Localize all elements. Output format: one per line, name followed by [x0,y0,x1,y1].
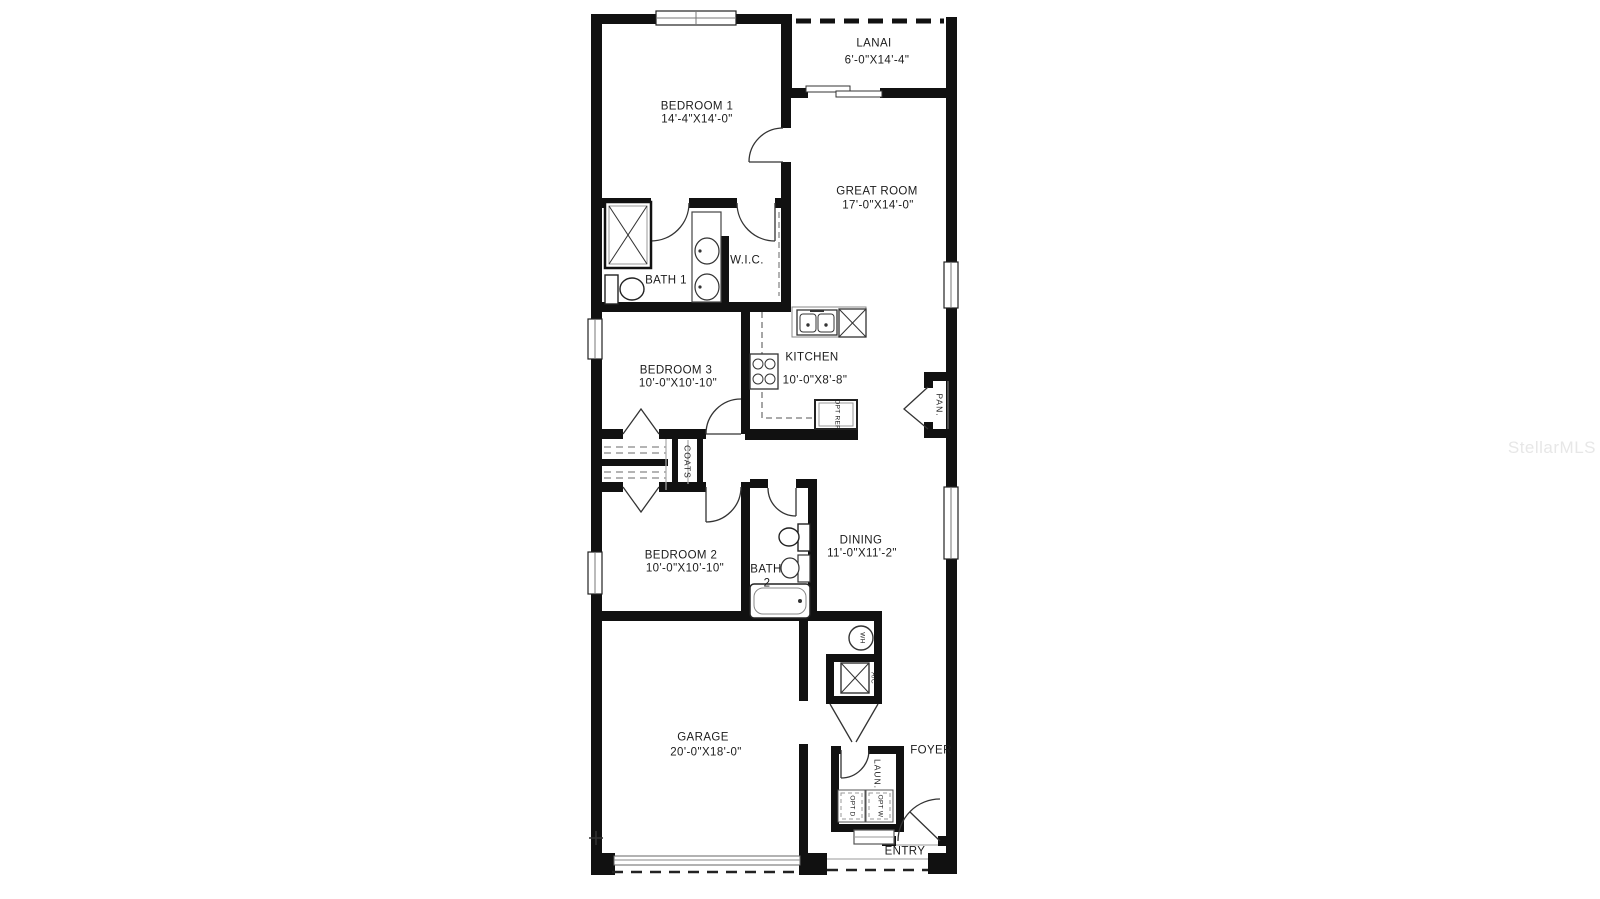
door-bedroom1 [749,128,783,162]
label-opt-washer: OPT W [876,795,883,818]
label-lanai-dims: 6'-0"X14'-4" [845,55,910,67]
wall-left [591,14,602,875]
stellar-mls-watermark: StellarMLS [1508,438,1596,458]
door-wic [737,203,775,241]
wall-bath1-wic-divider [721,236,729,302]
door-closet-bedroom2 [623,487,659,512]
toilet-bowl [779,528,799,546]
door-laundry [841,750,869,778]
label-foyer: FOYER [910,745,952,757]
wall-bath1-bottom [591,302,791,312]
label-kitchen-name: KITCHEN [785,352,838,364]
label-pantry: PAN. [935,393,944,416]
door-bedroom2 [706,487,741,522]
floorplan-linework [0,0,1600,899]
door-ac-leaf-a [830,704,852,742]
toilet-tank [605,275,618,304]
label-greatroom-name: GREAT ROOM [836,186,918,198]
label-bath1: BATH 1 [645,275,687,287]
label-lanai-name: LANAI [856,38,891,50]
kitchen-fixtures [750,307,948,429]
label-greatroom-dims: 17'-0"X14'-0" [842,200,913,212]
wall-bottom-mid [799,853,827,875]
wall-hall-bottom-a [591,482,623,492]
label-bath2-name: BATH [750,564,781,576]
wall-bath2-top-a [750,479,768,488]
interior-walls [591,24,957,853]
wall-bedroom1-greatroom-upper [781,24,791,128]
door-closet-bedroom3 [623,409,659,434]
label-bedroom2-dims: 10'-0"X10'-10" [646,563,724,575]
label-coats: COATS [683,445,692,479]
wall-laundry-top-b [868,746,904,754]
wall-garage-top [591,611,882,621]
label-dining-name: DINING [840,535,883,547]
wall-bath1-top-b [689,198,737,208]
wall-laundry-right [896,746,904,832]
wall-bedroom3-right [741,312,750,434]
label-bedroom1-name: BEDROOM 1 [661,101,734,113]
stove [750,354,778,389]
wall-garage-right-lower [799,744,808,853]
label-bedroom3-dims: 10'-0"X10'-10" [639,378,717,390]
label-laundry: LAUN. [873,759,882,789]
wall-pantry-jamb-bottom [924,422,933,438]
label-ac-unit: A/C [869,672,876,684]
door-ac-leaf-b [856,704,878,742]
toilet-tank [798,524,810,551]
label-bedroom2-name: BEDROOM 2 [645,550,718,562]
floorplan-canvas: BEDROOM 1 14'-4"X14'-0" LANAI 6'-0"X14'-… [0,0,1600,899]
label-entry: ENTRY [885,846,926,858]
label-water-heater: WH [858,632,865,643]
label-bath2-number: 2 [764,578,771,590]
slider-door-lanai [806,86,882,97]
label-opt-refrigerator: OPT REF. [833,399,840,431]
door-bedroom3 [706,399,741,434]
wall-ac-bottom [826,696,882,704]
wall-ac-top [826,654,882,662]
label-kitchen-dims: 10'-0"X8'-8" [783,375,848,387]
wall-laundry-top-a [831,746,841,754]
wall-coats-right [697,434,703,490]
sink-basin [781,558,799,578]
wall-bedroom2-right [741,482,750,621]
wall-bottom-left-corner [591,853,615,875]
wall-pantry-jamb-top [924,372,933,388]
door-bath1 [651,203,689,241]
exterior-walls [591,14,957,875]
wall-coats-left [672,434,678,490]
wall-kitchen-bottom [745,429,858,440]
label-dining-dims: 11'-0"X11'-2" [827,548,897,560]
toilet-bowl [620,278,644,300]
door-bath2 [768,488,796,516]
bath1-fixtures [605,202,779,304]
wall-wic-right [781,162,791,312]
wall-foyer-bottom-b [938,836,957,846]
wall-garage-right-upper [799,621,808,701]
vanity-counter [798,555,810,582]
wall-hall-top-a [591,429,623,439]
label-opt-dryer: OPT D [848,795,855,816]
wall-linen-divider [602,459,668,466]
wall-greatroom-top-b [880,88,946,98]
wall-bottom-right-corner [928,853,957,874]
label-garage-name: GARAGE [677,732,729,744]
wall-ac-left [826,654,834,704]
wall-bath1-top-c [775,198,791,208]
label-garage-dims: 20'-0"X18'-0" [670,747,741,759]
label-bedroom3-name: BEDROOM 3 [640,365,713,377]
label-wic: W.I.C. [730,255,764,267]
label-bedroom1-dims: 14'-4"X14'-0" [661,114,732,126]
